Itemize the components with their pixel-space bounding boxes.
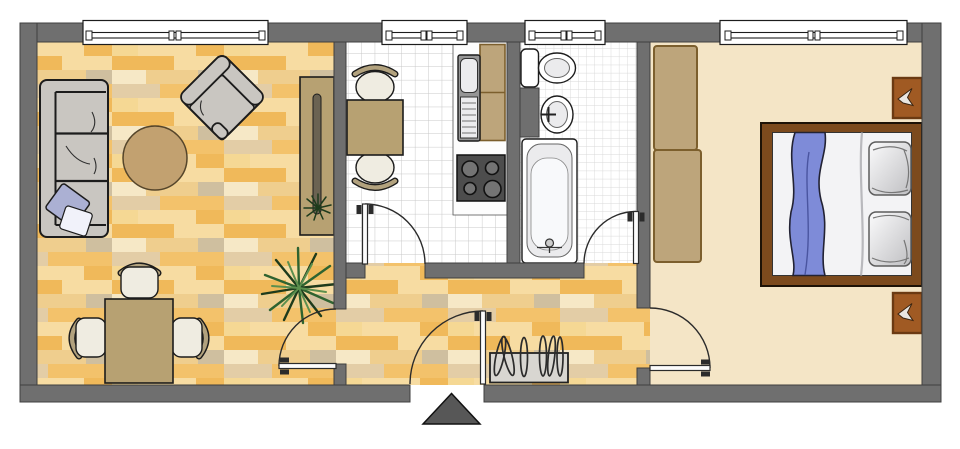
wall-living-kitchen xyxy=(334,42,346,309)
wardrobe xyxy=(654,46,701,262)
burner xyxy=(484,181,501,198)
dining-chair-top xyxy=(121,267,158,298)
wall-kitchen-bathroom xyxy=(507,42,520,278)
bed-pillow-top xyxy=(869,142,911,195)
floor-plan-image xyxy=(0,0,960,449)
entrance-marker-triangle-icon xyxy=(423,394,480,425)
round-rug xyxy=(123,126,187,190)
bathtub xyxy=(522,139,577,263)
wall-right xyxy=(922,23,941,402)
burner xyxy=(462,161,478,177)
window-bedroom xyxy=(720,21,907,45)
wall-bedroom-door-stub xyxy=(637,368,650,385)
nightstand-bottom xyxy=(893,293,922,333)
wall-kitchen-hall-right xyxy=(425,263,584,278)
bathtub-drain xyxy=(546,239,554,247)
wall-left xyxy=(20,23,37,402)
wall-kitchen-hall-left xyxy=(346,263,365,278)
door-leaf xyxy=(279,364,336,369)
double-bed xyxy=(761,123,922,286)
dining-chair-right xyxy=(172,318,202,357)
bathroom-sink xyxy=(541,96,573,133)
bed-pillow-bottom xyxy=(869,212,911,266)
door-leaf xyxy=(363,204,368,264)
nightstand-top xyxy=(893,78,922,118)
floor-plan-svg xyxy=(0,0,960,449)
wall-bathroom-stub xyxy=(520,88,539,137)
door-leaf xyxy=(481,311,486,384)
window-kitchen xyxy=(382,21,467,45)
window-living-room xyxy=(83,21,268,45)
wall-bathroom-bedroom xyxy=(637,42,650,308)
wall-bottom-right-segment xyxy=(484,385,941,402)
wall-bottom-left-segment xyxy=(20,385,410,402)
kitchen-sink xyxy=(458,55,480,141)
door-leaf xyxy=(634,212,639,264)
sideboard-slot xyxy=(313,94,321,214)
burner xyxy=(486,162,499,175)
window-bathroom xyxy=(525,21,605,45)
dining-table xyxy=(105,299,173,383)
stove xyxy=(457,155,505,201)
kitchen-counter xyxy=(453,42,507,215)
dining-chair-left xyxy=(76,318,106,357)
kitchen-table xyxy=(347,100,403,155)
kitchen-chair-bottom xyxy=(356,152,394,183)
kitchen-chair-top xyxy=(356,72,394,103)
door-leaf xyxy=(650,366,710,371)
burner xyxy=(464,183,476,195)
